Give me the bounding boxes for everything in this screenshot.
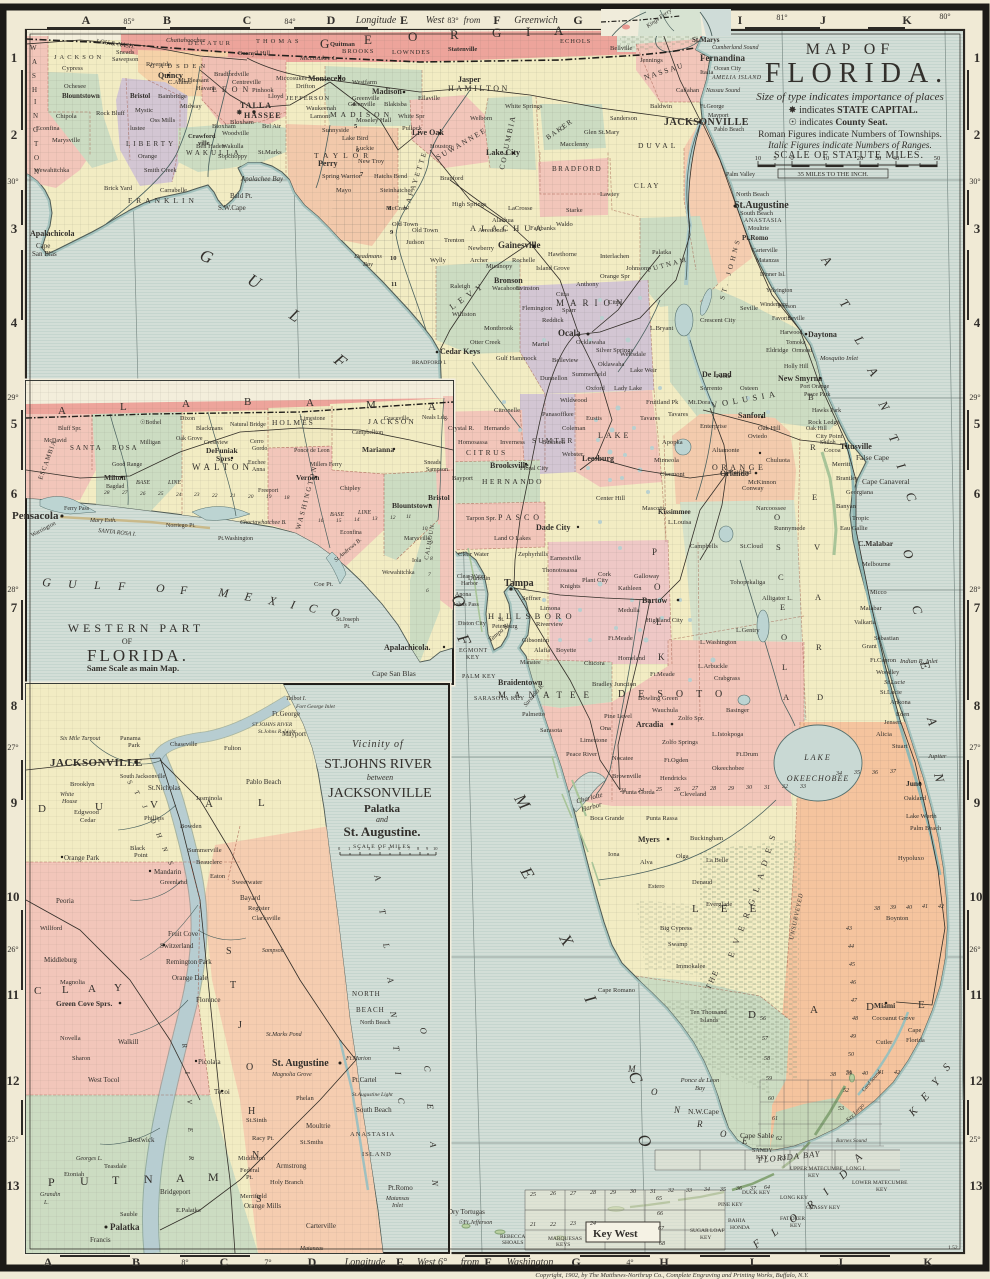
svg-text:Bayard: Bayard: [240, 894, 261, 902]
svg-text:26°: 26°: [7, 945, 18, 954]
svg-text:Runnymede: Runnymede: [774, 525, 806, 532]
svg-text:15: 15: [336, 518, 342, 524]
svg-text:31: 31: [649, 1189, 656, 1195]
svg-text:50: 50: [934, 155, 941, 162]
svg-text:Coe Pt.: Coe Pt.: [314, 581, 334, 588]
svg-text:48: 48: [852, 1015, 858, 1022]
svg-text:SCALE OF STATUTE MILES.: SCALE OF STATUTE MILES.: [774, 150, 924, 161]
svg-text:J: J: [238, 1020, 242, 1031]
svg-text:St.Joseph: St.Joseph: [336, 617, 359, 623]
svg-text:27°: 27°: [969, 743, 980, 752]
svg-text:Starke: Starke: [566, 207, 583, 214]
svg-text:66: 66: [657, 1211, 663, 1217]
svg-text:Brownville: Brownville: [612, 773, 641, 780]
svg-text:Havana: Havana: [196, 85, 216, 92]
svg-text:8°: 8°: [181, 1258, 188, 1267]
svg-text:Johnson: Johnson: [626, 265, 648, 272]
svg-text:Ft.Marion: Ft.Marion: [345, 1056, 371, 1062]
svg-text:29: 29: [610, 1190, 616, 1196]
svg-text:Clarksville: Clarksville: [252, 915, 281, 922]
svg-text:Pt.Cartel: Pt.Cartel: [352, 1076, 377, 1084]
svg-text:K: K: [658, 652, 665, 662]
svg-text:City Point: City Point: [816, 433, 843, 440]
svg-text:83°: 83°: [447, 16, 458, 25]
svg-text:Sampson: Sampson: [426, 467, 448, 473]
svg-text:Middleburg: Middleburg: [44, 956, 77, 964]
svg-text:Limestone: Limestone: [580, 737, 608, 744]
svg-text:GRASSY KEY: GRASSY KEY: [806, 1205, 840, 1211]
svg-text:28°: 28°: [969, 585, 980, 594]
svg-text:PINE KEY: PINE KEY: [718, 1202, 743, 1208]
svg-text:Luckie: Luckie: [356, 145, 374, 152]
svg-text:Riverview: Riverview: [536, 621, 563, 628]
svg-text:Lloyd: Lloyd: [268, 93, 284, 100]
svg-text:O: O: [408, 29, 417, 44]
svg-text:84°: 84°: [284, 17, 295, 26]
svg-text:Midway: Midway: [180, 103, 202, 110]
svg-text:Inverness: Inverness: [500, 439, 525, 446]
svg-text:WALTON: WALTON: [192, 462, 253, 472]
svg-text:14: 14: [354, 516, 360, 523]
svg-text:Dunnellon: Dunnellon: [540, 375, 568, 382]
svg-text:Ona: Ona: [600, 725, 611, 732]
svg-text:R: R: [810, 442, 816, 452]
svg-text:Pt.Washington: Pt.Washington: [218, 536, 253, 542]
svg-text:BRADFORD I.: BRADFORD I.: [412, 360, 447, 366]
svg-text:Eustis: Eustis: [586, 415, 602, 422]
svg-text:BEACH: BEACH: [356, 1006, 385, 1014]
svg-text:10: 10: [390, 255, 397, 262]
svg-text:Mary Esth.: Mary Esth.: [89, 518, 117, 524]
svg-text:ANASTASIA: ANASTASIA: [350, 1131, 395, 1138]
svg-text:49: 49: [850, 1033, 856, 1040]
svg-text:Crabgrass: Crabgrass: [714, 675, 740, 682]
svg-text:E: E: [400, 13, 408, 27]
svg-text:ST.JOHNS RIVER: ST.JOHNS RIVER: [324, 757, 433, 772]
svg-text:R: R: [816, 642, 822, 652]
svg-text:SARASOTA KEY: SARASOTA KEY: [474, 696, 525, 702]
svg-text:Vicinity of: Vicinity of: [352, 739, 404, 750]
svg-text:Florida: Florida: [906, 1037, 925, 1044]
svg-text:KEY: KEY: [876, 1187, 887, 1193]
svg-text:Stuart: Stuart: [892, 743, 908, 750]
svg-text:Jupiter: Jupiter: [928, 753, 947, 760]
svg-text:Cape Sable: Cape Sable: [740, 1131, 775, 1140]
svg-text:Phelan: Phelan: [296, 1095, 314, 1102]
svg-text:Sanford: Sanford: [738, 411, 766, 420]
svg-text:Pierson: Pierson: [778, 304, 796, 310]
svg-text:FLORIDA.: FLORIDA.: [765, 58, 949, 89]
svg-text:Cutler: Cutler: [876, 1039, 893, 1046]
svg-text:Lake Weir: Lake Weir: [630, 367, 658, 374]
svg-text:AMELIA ISLAND: AMELIA ISLAND: [711, 75, 762, 81]
svg-text:McDavid: McDavid: [44, 438, 67, 444]
svg-text:Miccosukee L.: Miccosukee L.: [299, 55, 338, 62]
svg-text:Gordo: Gordo: [252, 446, 267, 452]
svg-text:West: West: [426, 15, 445, 26]
svg-text:Dade City: Dade City: [536, 523, 570, 532]
svg-text:Pt.Romo: Pt.Romo: [388, 1184, 413, 1192]
svg-text:F: F: [493, 13, 500, 27]
svg-text:Bunny'l Hill: Bunny'l Hill: [238, 50, 270, 57]
svg-text:Houston: Houston: [430, 143, 453, 150]
svg-text:✸: ✸: [236, 108, 243, 117]
svg-text:Longitude: Longitude: [355, 15, 397, 26]
svg-text:Cape Romano: Cape Romano: [598, 987, 635, 994]
svg-text:M: M: [627, 1064, 636, 1074]
svg-text:1: 1: [348, 846, 350, 851]
svg-text:Immokalee: Immokalee: [676, 963, 705, 970]
svg-text:WESTERN PART: WESTERN PART: [68, 621, 205, 635]
svg-text:Marysville: Marysville: [404, 536, 430, 542]
svg-text:CITRUS: CITRUS: [466, 448, 508, 457]
svg-text:Waldo: Waldo: [556, 221, 573, 228]
svg-text:White Spr: White Spr: [398, 113, 425, 120]
svg-text:Otter Creek: Otter Creek: [470, 339, 501, 346]
svg-text:20: 20: [857, 155, 864, 162]
svg-text:Apopka: Apopka: [662, 439, 683, 446]
svg-text:Arredondo: Arredondo: [478, 227, 506, 234]
svg-text:6: 6: [11, 486, 18, 501]
svg-text:L.Istokpoga: L.Istokpoga: [712, 731, 743, 738]
svg-text:St.Johns R. Light: St.Johns R. Light: [258, 729, 296, 735]
svg-text:L.Gentry: L.Gentry: [736, 627, 760, 634]
svg-text:C: C: [220, 1255, 229, 1269]
svg-text:Bainbridge: Bainbridge: [158, 93, 187, 100]
svg-text:Magnolia: Magnolia: [60, 979, 85, 986]
svg-text:CLAY: CLAY: [634, 182, 660, 190]
svg-text:Federal: Federal: [240, 1167, 260, 1174]
svg-text:BASE: BASE: [136, 480, 150, 486]
svg-text:Fernandina: Fernandina: [700, 53, 746, 63]
svg-text:Sprs.: Sprs.: [216, 454, 233, 463]
svg-text:Ponce de Leon: Ponce de Leon: [680, 1077, 720, 1084]
svg-text:L.: L.: [43, 1200, 49, 1206]
svg-text:Blountstown: Blountstown: [62, 92, 100, 100]
svg-text:Register: Register: [248, 905, 270, 912]
svg-text:Citronelle: Citronelle: [494, 407, 520, 414]
svg-text:Mt.Dora: Mt.Dora: [688, 399, 710, 406]
svg-text:13: 13: [970, 1178, 984, 1193]
svg-text:Interlachen: Interlachen: [600, 253, 630, 260]
svg-text:Teasdale: Teasdale: [104, 1163, 127, 1170]
svg-text:Greenville: Greenville: [348, 101, 376, 108]
svg-text:South Beach: South Beach: [740, 210, 774, 217]
svg-text:35: 35: [719, 1187, 726, 1193]
svg-text:Crawford: Crawford: [188, 133, 216, 140]
svg-text:St. Augustine.: St. Augustine.: [344, 824, 421, 839]
svg-text:Bartow: Bartow: [642, 596, 668, 605]
svg-text:PASCO: PASCO: [498, 513, 543, 522]
svg-text:LAKE: LAKE: [803, 753, 832, 762]
svg-text:Old Town: Old Town: [412, 227, 439, 234]
svg-text:L.Louisa: L.Louisa: [668, 519, 691, 526]
svg-text:Walkill: Walkill: [118, 1038, 138, 1046]
svg-text:Conway: Conway: [742, 485, 764, 492]
svg-text:McCrab: McCrab: [386, 205, 407, 212]
svg-text:Campbells: Campbells: [690, 543, 718, 550]
svg-text:Micco: Micco: [870, 589, 887, 596]
svg-text:MAP OF: MAP OF: [806, 41, 895, 58]
svg-text:Bridgeport: Bridgeport: [160, 1188, 190, 1196]
svg-text:B: B: [163, 13, 171, 27]
svg-text:7°: 7°: [264, 1258, 271, 1267]
svg-text:Magnolia Grove: Magnolia Grove: [271, 1072, 312, 1078]
svg-text:25°: 25°: [7, 1135, 18, 1144]
svg-text:Valkaria: Valkaria: [854, 619, 876, 626]
svg-text:Sneads: Sneads: [424, 460, 442, 466]
svg-text:JACKSONVILLE: JACKSONVILLE: [50, 757, 143, 769]
svg-text:from: from: [464, 15, 481, 25]
svg-text:Cape San Blas: Cape San Blas: [372, 669, 416, 678]
svg-text:Rock Ledge: Rock Ledge: [808, 419, 840, 426]
svg-text:St.Lucie: St.Lucie: [880, 689, 902, 696]
svg-text:Miccosukee: Miccosukee: [276, 75, 308, 82]
svg-text:ST.JOHNS RIVER: ST.JOHNS RIVER: [252, 722, 293, 728]
svg-text:Cocoanut Grove: Cocoanut Grove: [872, 1015, 915, 1022]
svg-text:58: 58: [764, 1056, 770, 1062]
svg-text:Alva: Alva: [640, 859, 653, 866]
svg-text:Willford: Willford: [40, 925, 63, 932]
svg-text:SUGAR LOAF: SUGAR LOAF: [690, 1228, 724, 1234]
svg-text:DECATUR: DECATUR: [188, 40, 232, 47]
svg-text:Inlet: Inlet: [391, 1203, 403, 1209]
svg-text:Hawks Park: Hawks Park: [812, 408, 841, 414]
svg-text:LaCrosse: LaCrosse: [508, 205, 533, 212]
svg-text:G: G: [320, 36, 329, 51]
svg-text:Gulf Hammock: Gulf Hammock: [496, 355, 537, 362]
svg-text:D: D: [38, 803, 46, 815]
svg-text:C: C: [243, 13, 252, 27]
svg-text:Sweetwater: Sweetwater: [232, 879, 263, 886]
svg-text:New Smyrna: New Smyrna: [778, 374, 822, 383]
svg-text:41: 41: [878, 1069, 884, 1076]
svg-text:Carterville: Carterville: [306, 1222, 336, 1230]
svg-text:Zephyrhills: Zephyrhills: [518, 551, 548, 558]
svg-text:27°: 27°: [7, 743, 18, 752]
svg-text:10: 10: [823, 155, 830, 162]
svg-text:Maitland: Maitland: [728, 469, 752, 476]
svg-text:25: 25: [656, 787, 662, 793]
svg-text:43: 43: [846, 925, 852, 932]
svg-text:Blakisba: Blakisba: [384, 101, 407, 108]
svg-text:Williston: Williston: [452, 311, 477, 318]
svg-text:PALM KEY: PALM KEY: [462, 674, 496, 680]
svg-text:12: 12: [7, 1073, 20, 1088]
svg-text:11: 11: [970, 987, 982, 1002]
svg-text:Tomoka: Tomoka: [786, 340, 806, 346]
svg-text:DUVAL: DUVAL: [638, 141, 678, 150]
svg-text:Alachua: Alachua: [492, 217, 514, 224]
svg-text:White: White: [60, 792, 74, 798]
svg-text:42: 42: [894, 1069, 900, 1076]
svg-text:Eldridge: Eldridge: [766, 347, 788, 354]
svg-text:Ft.Meade: Ft.Meade: [608, 635, 633, 642]
svg-text:46: 46: [850, 979, 856, 986]
svg-text:Bostwick: Bostwick: [128, 1136, 155, 1144]
svg-text:38: 38: [829, 1072, 836, 1078]
svg-text:P: P: [48, 1175, 55, 1189]
svg-text:Moultrie: Moultrie: [306, 1122, 331, 1130]
svg-text:Cocoa: Cocoa: [824, 447, 841, 454]
svg-text:9: 9: [430, 540, 433, 546]
svg-text:59: 59: [766, 1076, 772, 1082]
svg-text:BAHIA: BAHIA: [728, 1218, 745, 1224]
svg-text:80°: 80°: [939, 12, 950, 21]
svg-text:L: L: [258, 797, 265, 809]
svg-text:Cape: Cape: [908, 1027, 921, 1034]
svg-text:LAKE: LAKE: [598, 431, 631, 440]
svg-text:Altamonte: Altamonte: [712, 447, 740, 454]
svg-text:Copyright, 1902, by The Matthe: Copyright, 1902, by The Matthews-Northru…: [535, 1272, 809, 1279]
svg-text:South Jacksonville: South Jacksonville: [120, 774, 166, 780]
svg-text:Y: Y: [114, 982, 122, 994]
svg-text:W: W: [30, 44, 37, 52]
svg-text:30: 30: [875, 155, 882, 162]
svg-text:UPPER MATECUMBE: UPPER MATECUMBE: [790, 1166, 844, 1172]
svg-text:Mosquito Inlet: Mosquito Inlet: [819, 355, 858, 362]
svg-text:✸ indicates STATE CAPITAL.: ✸ indicates STATE CAPITAL.: [788, 105, 918, 116]
svg-text:21: 21: [230, 493, 236, 499]
svg-text:Trenton: Trenton: [444, 237, 465, 244]
svg-text:2: 2: [974, 127, 981, 142]
svg-text:Manatee: Manatee: [520, 660, 541, 666]
svg-text:Edgwood: Edgwood: [74, 809, 100, 816]
svg-text:Novella: Novella: [60, 1035, 81, 1042]
svg-text:Micanopy: Micanopy: [486, 263, 513, 270]
svg-text:St.Nicholas: St.Nicholas: [148, 784, 181, 792]
svg-text:Lamont: Lamont: [310, 113, 330, 120]
svg-text:Ft.George: Ft.George: [700, 104, 724, 110]
svg-text:Rochelle: Rochelle: [512, 257, 535, 264]
svg-text:Wylly: Wylly: [430, 257, 447, 264]
svg-text:T: T: [230, 980, 236, 991]
svg-text:Wakulla: Wakulla: [222, 143, 244, 150]
svg-text:L: L: [782, 662, 787, 672]
svg-text:Citra: Citra: [556, 291, 569, 298]
svg-text:Milligan: Milligan: [140, 440, 161, 446]
svg-text:30°: 30°: [7, 177, 18, 186]
svg-text:between: between: [367, 773, 393, 782]
svg-text:KEY: KEY: [790, 1223, 801, 1229]
svg-text:KEY: KEY: [756, 1155, 769, 1161]
svg-text:Oss Mills: Oss Mills: [150, 117, 176, 124]
svg-text:Panama: Panama: [120, 735, 141, 742]
svg-text:V: V: [150, 799, 158, 811]
svg-text:4: 4: [11, 315, 18, 330]
svg-text:St.Smths: St.Smths: [300, 1139, 324, 1146]
svg-text:Bald Pt.: Bald Pt.: [230, 192, 253, 200]
svg-text:Yelvington: Yelvington: [766, 288, 792, 294]
svg-text:5: 5: [974, 416, 981, 431]
svg-text:R: R: [450, 27, 459, 42]
svg-text:Orange Dale: Orange Dale: [172, 974, 208, 982]
svg-text:Milton: Milton: [104, 473, 126, 482]
svg-text:Pensacola: Pensacola: [12, 510, 59, 522]
svg-text:West 6°: West 6°: [417, 1257, 447, 1268]
svg-text:Francis: Francis: [90, 1236, 111, 1244]
svg-text:Basinger: Basinger: [726, 707, 750, 714]
svg-text:Sanderson: Sanderson: [610, 115, 638, 122]
svg-text:LONG I.: LONG I.: [846, 1166, 866, 1172]
svg-text:Branford: Branford: [440, 175, 464, 182]
svg-text:Ft.Drum: Ft.Drum: [736, 751, 758, 758]
svg-text:Good Range: Good Range: [112, 462, 142, 468]
svg-text:36: 36: [735, 1186, 742, 1192]
svg-text:F: F: [179, 583, 188, 597]
svg-text:Oakland: Oakland: [904, 795, 927, 802]
svg-text:North Beach: North Beach: [360, 1020, 391, 1026]
svg-text:35: 35: [853, 770, 860, 776]
svg-text:G: G: [571, 1255, 580, 1269]
svg-text:18: 18: [284, 495, 290, 501]
svg-text:Pt.: Pt.: [246, 1174, 253, 1181]
svg-text:Zolfo Spr.: Zolfo Spr.: [678, 715, 705, 722]
svg-text:South Beach: South Beach: [356, 1106, 392, 1114]
svg-text:Florence: Florence: [196, 996, 221, 1004]
svg-text:B: B: [244, 396, 251, 408]
svg-text:Iona: Iona: [608, 851, 620, 858]
svg-text:13: 13: [372, 516, 378, 522]
svg-text:L: L: [120, 401, 127, 413]
svg-text:Big Cypress: Big Cypress: [660, 925, 692, 932]
svg-text:OF: OF: [122, 637, 133, 646]
svg-text:Dry Tortugas: Dry Tortugas: [448, 1208, 485, 1216]
svg-text:D: D: [308, 1255, 317, 1269]
svg-text:Oxford: Oxford: [586, 385, 606, 392]
svg-text:42: 42: [938, 903, 944, 910]
svg-text:G: G: [492, 25, 501, 40]
svg-text:Glen St.Mary: Glen St.Mary: [584, 129, 620, 136]
svg-text:Cedar: Cedar: [80, 817, 96, 824]
svg-text:4°: 4°: [626, 1258, 633, 1267]
svg-text:Bristol: Bristol: [428, 493, 450, 502]
svg-text:Minneola: Minneola: [654, 457, 679, 464]
svg-text:Weirsdale: Weirsdale: [620, 351, 646, 358]
svg-text:Bowling Green: Bowling Green: [638, 695, 679, 702]
svg-text:Wacahoota: Wacahoota: [492, 285, 521, 292]
svg-text:Limestone: Limestone: [300, 416, 326, 422]
svg-text:Hypoluxo: Hypoluxo: [898, 855, 924, 862]
svg-text:4: 4: [974, 315, 981, 330]
svg-text:N: N: [673, 1105, 681, 1115]
svg-text:Moseley Hall: Moseley Hall: [356, 117, 391, 124]
svg-text:Ormond: Ormond: [792, 348, 812, 354]
svg-text:Palatka: Palatka: [110, 1222, 140, 1232]
svg-text:THOMAS: THOMAS: [256, 38, 301, 45]
svg-text:8: 8: [430, 556, 433, 562]
svg-text:Picolata: Picolata: [198, 1058, 221, 1066]
svg-text:67: 67: [658, 1226, 665, 1232]
svg-text:Daytona: Daytona: [808, 330, 837, 339]
svg-text:JEFFERSON: JEFFERSON: [286, 95, 330, 102]
svg-text:Myers: Myers: [638, 835, 660, 844]
svg-text:Euchee: Euchee: [248, 460, 266, 466]
svg-text:Floral City: Floral City: [520, 465, 549, 472]
svg-text:U: U: [68, 577, 78, 591]
svg-text:Iola: Iola: [412, 558, 422, 564]
svg-text:81°: 81°: [776, 13, 787, 22]
svg-text:Crescent City: Crescent City: [700, 317, 736, 324]
svg-text:Orange Mills: Orange Mills: [244, 1202, 281, 1210]
svg-text:K: K: [902, 13, 912, 27]
svg-text:St.Marks: St.Marks: [258, 149, 282, 156]
svg-text:Panasoffkee: Panasoffkee: [542, 411, 574, 418]
svg-text:S: S: [776, 542, 781, 552]
svg-text:Callahan: Callahan: [676, 87, 700, 94]
svg-text:Ponce de Leon: Ponce de Leon: [294, 448, 330, 454]
svg-text:Hernando: Hernando: [484, 425, 510, 432]
